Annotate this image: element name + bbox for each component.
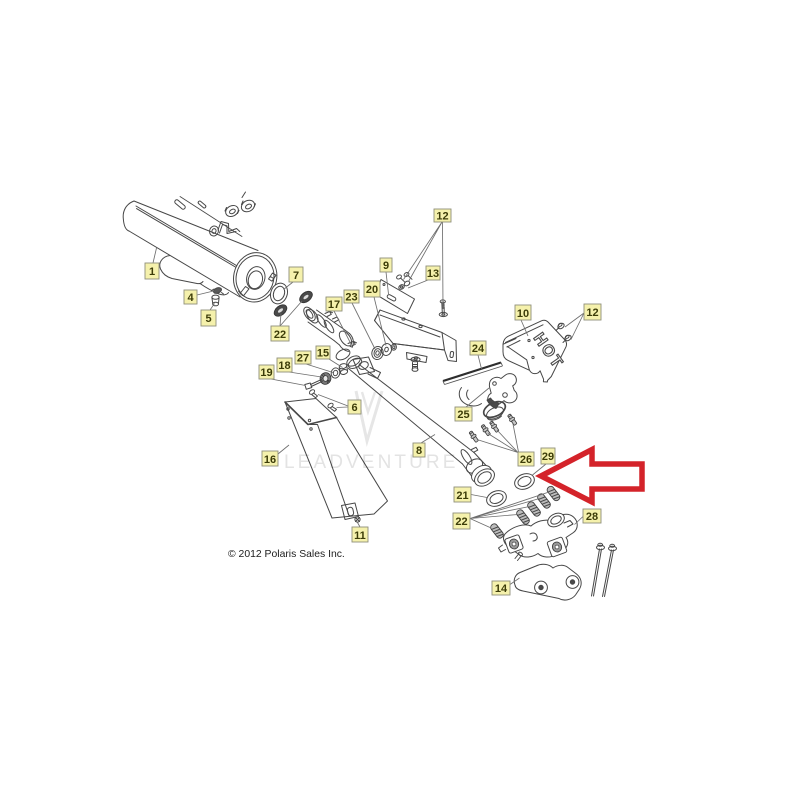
svg-text:22: 22	[274, 329, 286, 341]
svg-text:17: 17	[328, 299, 340, 311]
svg-text:20: 20	[366, 284, 378, 296]
svg-text:13: 13	[427, 268, 439, 280]
svg-text:21: 21	[456, 490, 468, 502]
svg-text:27: 27	[297, 353, 309, 365]
svg-text:24: 24	[472, 343, 485, 355]
svg-text:25: 25	[457, 409, 469, 421]
svg-text:18: 18	[278, 360, 290, 372]
svg-text:1: 1	[149, 266, 155, 278]
svg-text:12: 12	[586, 307, 598, 319]
svg-text:10: 10	[517, 308, 529, 320]
svg-text:6: 6	[351, 402, 357, 414]
svg-text:19: 19	[260, 367, 272, 379]
svg-text:15: 15	[317, 348, 329, 360]
svg-text:© 2012 Polaris Sales Inc.: © 2012 Polaris Sales Inc.	[228, 549, 345, 560]
svg-text:7: 7	[293, 270, 299, 282]
svg-text:4: 4	[187, 292, 194, 304]
svg-text:14: 14	[495, 583, 508, 595]
svg-text:28: 28	[586, 511, 598, 523]
svg-text:5: 5	[205, 313, 211, 325]
svg-text:9: 9	[383, 260, 389, 272]
svg-text:29: 29	[542, 451, 554, 463]
svg-text:22: 22	[455, 516, 467, 528]
svg-text:26: 26	[520, 454, 532, 466]
svg-text:23: 23	[345, 292, 357, 304]
svg-text:8: 8	[416, 445, 422, 457]
svg-text:LEADVENTURE: LEADVENTURE	[284, 452, 459, 473]
svg-text:11: 11	[354, 530, 366, 542]
svg-text:16: 16	[264, 454, 276, 466]
svg-text:12: 12	[436, 211, 448, 223]
